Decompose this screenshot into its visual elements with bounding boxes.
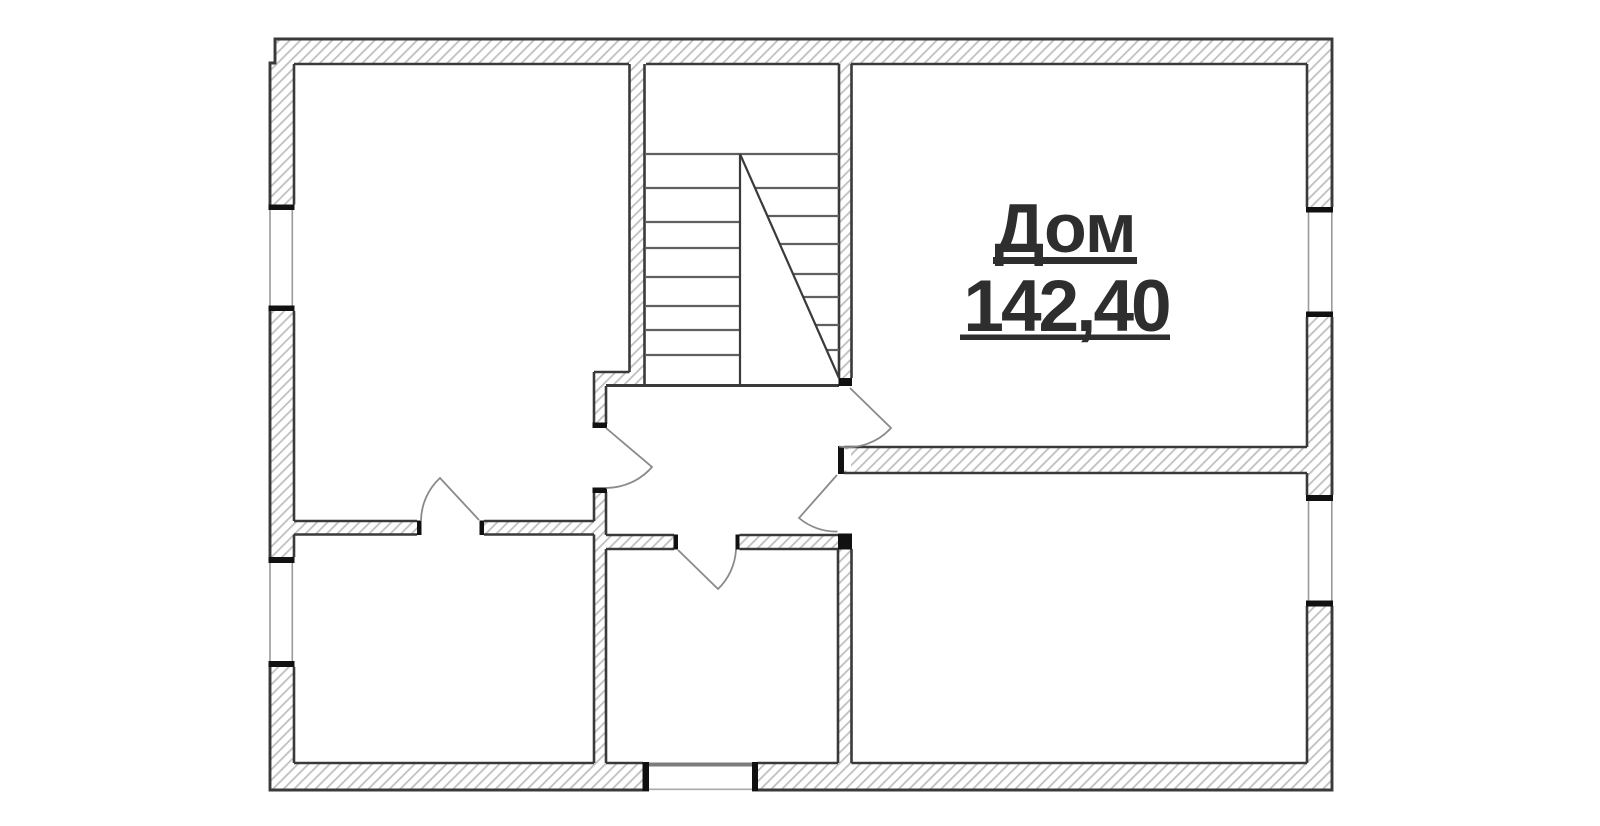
svg-text:Дом: Дом bbox=[994, 189, 1135, 267]
